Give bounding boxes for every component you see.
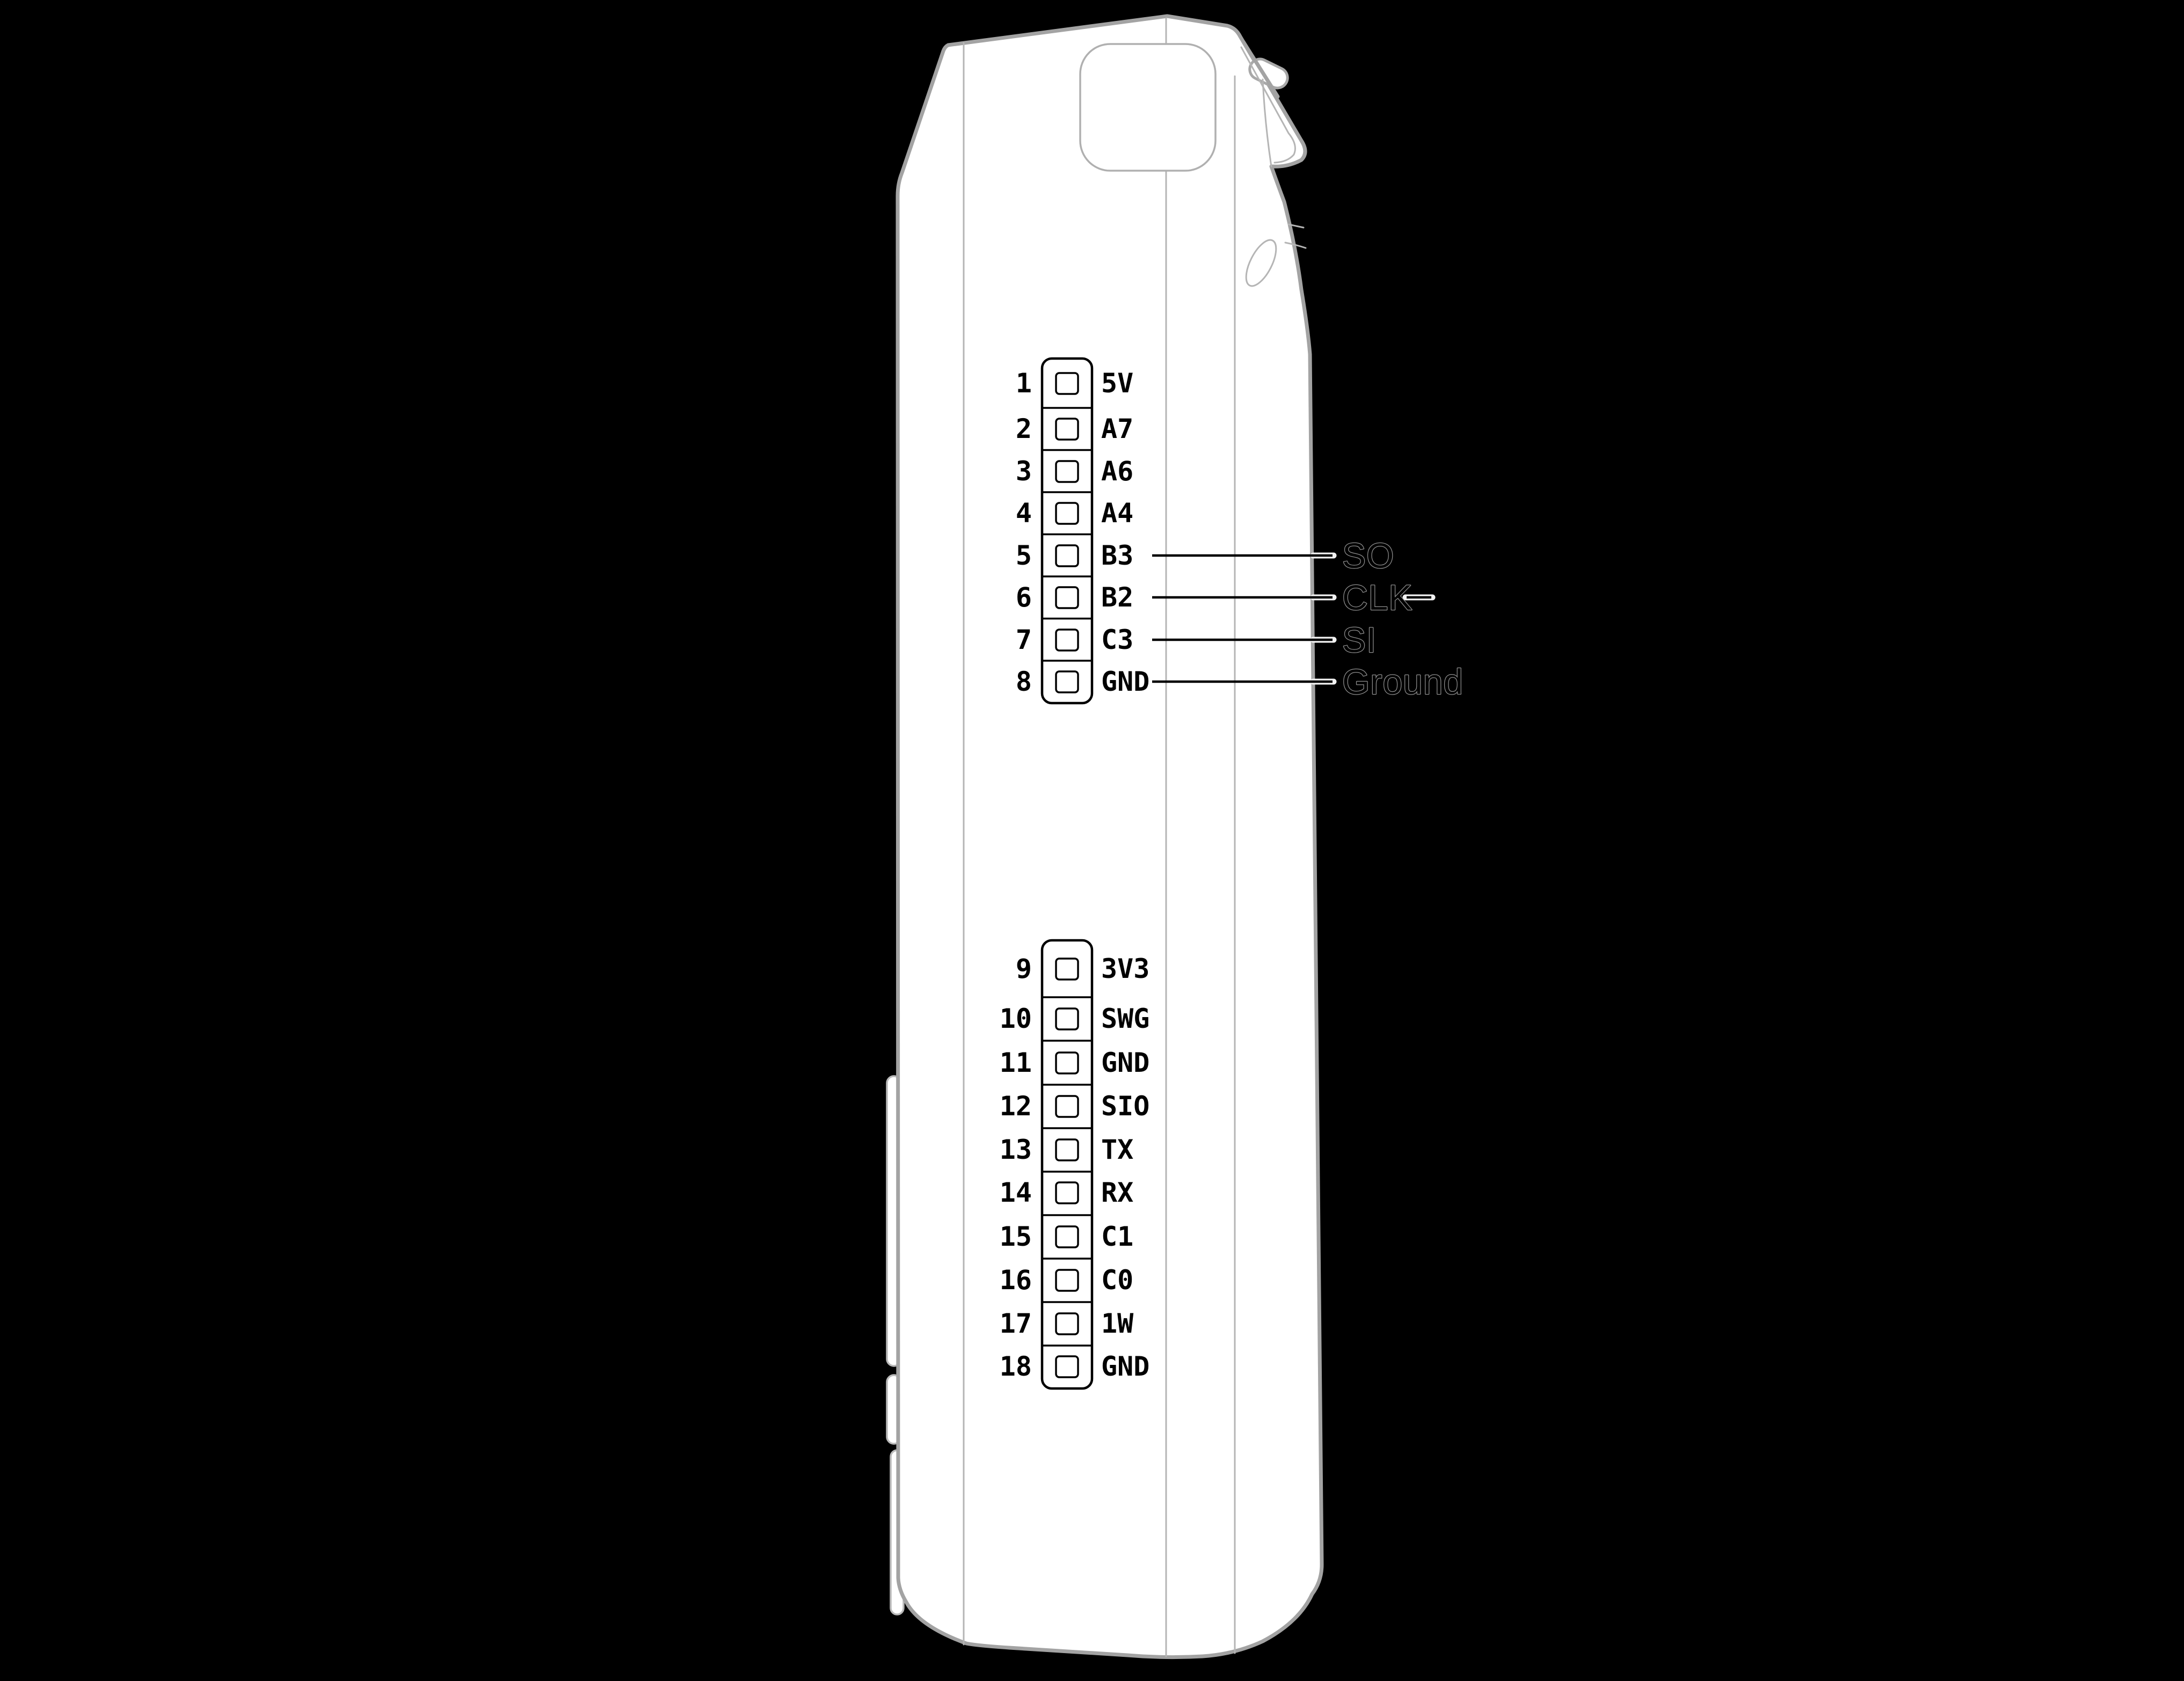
device-pinout-diagram: 1 5V 2 A7 3 A6 4 A4 5 B3 6 B2 (0, 0, 2184, 1681)
pin-number: 14 (1000, 1177, 1032, 1208)
pin-pad (1056, 373, 1078, 394)
pin-number: 6 (1016, 582, 1032, 613)
pin-pad (1056, 545, 1078, 566)
pin-label: 5V (1101, 368, 1133, 399)
ir-window (1080, 44, 1215, 171)
pin-number: 2 (1016, 413, 1032, 444)
pin-label: 1W (1101, 1308, 1134, 1339)
pin-label: SWG (1101, 1003, 1149, 1034)
pin-label: C0 (1101, 1265, 1133, 1296)
pin-label: C1 (1101, 1221, 1133, 1252)
pin-number: 10 (1000, 1003, 1032, 1034)
pin-number: 1 (1016, 368, 1032, 399)
pin-row-14: 14 RX (1000, 1177, 1133, 1208)
pin-number: 7 (1016, 624, 1032, 655)
pin-label: RX (1101, 1177, 1133, 1208)
pin-label: SIO (1101, 1091, 1149, 1122)
pin-number: 8 (1016, 666, 1032, 697)
device-body-outline (898, 16, 1322, 1657)
pin-pad (1056, 630, 1078, 651)
pin-row-17: 17 1W (1000, 1308, 1134, 1339)
pin-row-15: 15 C1 (1000, 1221, 1133, 1252)
pin-label: TX (1101, 1134, 1133, 1165)
pin-pad (1056, 1182, 1078, 1203)
pin-label: A6 (1101, 456, 1133, 487)
pin-number: 13 (1000, 1134, 1032, 1165)
callout-label: Ground (1342, 662, 1464, 701)
pin-row-11: 11 GND (1000, 1047, 1150, 1078)
pin-number: 15 (1000, 1221, 1032, 1252)
pin-pad (1056, 1096, 1078, 1117)
pin-label: A7 (1101, 413, 1133, 444)
pin-pad (1056, 1313, 1078, 1334)
callout-label: SI (1342, 620, 1377, 660)
device-outline (887, 16, 1322, 1657)
pin-label: C3 (1101, 624, 1133, 655)
pin-pad (1056, 1356, 1078, 1377)
pin-pad (1056, 587, 1078, 608)
pin-label: B3 (1101, 540, 1133, 571)
pin-number: 9 (1016, 953, 1032, 984)
pin-label: GND (1101, 666, 1149, 697)
callout-label: SO (1342, 536, 1394, 575)
pin-pad (1056, 419, 1078, 440)
pinout-screenshot: { "colors": { "background": "#000000", "… (0, 0, 2184, 1681)
pin-label: GND (1101, 1351, 1149, 1382)
pin-number: 18 (1000, 1351, 1032, 1382)
pin-pad (1056, 959, 1078, 980)
pin-row-16: 16 C0 (1000, 1265, 1133, 1296)
pin-pad (1056, 671, 1078, 692)
pin-pad (1056, 1053, 1078, 1073)
pin-number: 5 (1016, 540, 1032, 571)
pin-pad (1056, 1008, 1078, 1029)
pin-pad (1056, 503, 1078, 524)
pin-row-13: 13 TX (1000, 1134, 1133, 1165)
pin-label: A4 (1101, 498, 1133, 529)
callout-label: CLK (1342, 578, 1413, 617)
pin-pad (1056, 1139, 1078, 1160)
pin-row-12: 12 SIO (1000, 1091, 1150, 1122)
pin-label: 3V3 (1101, 953, 1149, 984)
pin-pad (1056, 1226, 1078, 1247)
pin-number: 16 (1000, 1265, 1032, 1296)
pin-number: 12 (1000, 1091, 1032, 1122)
pin-number: 11 (1000, 1047, 1032, 1078)
pin-pad (1056, 1270, 1078, 1291)
pin-pad (1056, 461, 1078, 482)
pin-number: 4 (1016, 498, 1032, 529)
pin-label: B2 (1101, 582, 1133, 613)
pin-label: GND (1101, 1047, 1149, 1078)
pin-number: 3 (1016, 456, 1032, 487)
pin-row-18: 18 GND (1000, 1351, 1150, 1382)
pin-row-10: 10 SWG (1000, 1003, 1150, 1034)
pin-number: 17 (1000, 1308, 1032, 1339)
